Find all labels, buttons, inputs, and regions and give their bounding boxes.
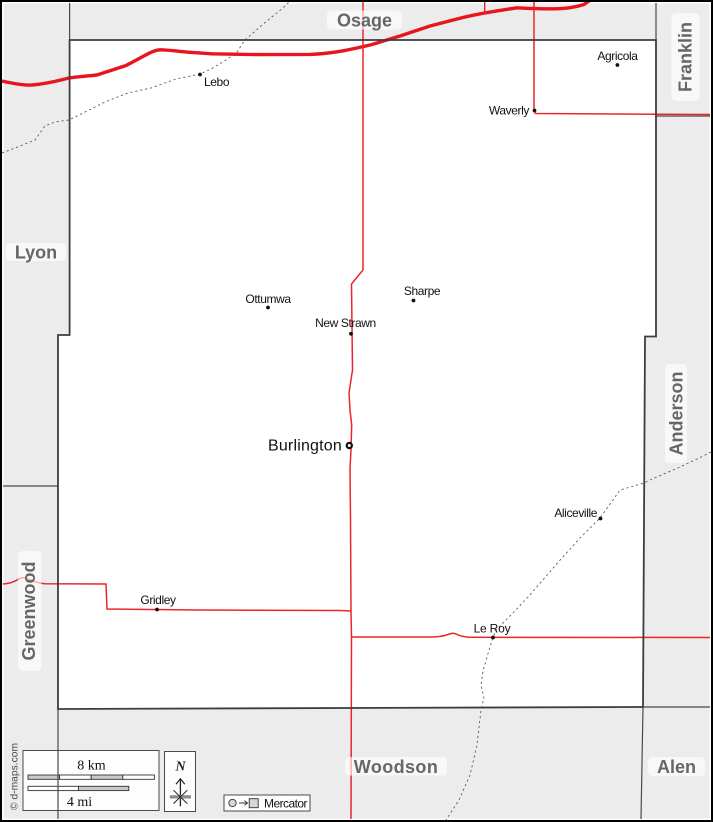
svg-text:Waverly: Waverly bbox=[489, 104, 529, 118]
svg-text:Franklin: Franklin bbox=[675, 22, 695, 92]
svg-text:Greenwood: Greenwood bbox=[19, 561, 39, 660]
svg-text:Ottumwa: Ottumwa bbox=[245, 292, 291, 306]
svg-text:Sharpe: Sharpe bbox=[404, 284, 441, 298]
svg-text:Burlington: Burlington bbox=[268, 438, 342, 455]
svg-text:Alen: Alen bbox=[657, 757, 696, 777]
svg-text:Gridley: Gridley bbox=[140, 593, 176, 607]
svg-text:Osage: Osage bbox=[337, 10, 392, 30]
svg-text:Lebo: Lebo bbox=[204, 75, 230, 89]
svg-text:8 km: 8 km bbox=[77, 759, 106, 774]
svg-text:Mercator: Mercator bbox=[264, 796, 307, 810]
svg-text:Agricola: Agricola bbox=[597, 49, 638, 63]
svg-text:4 mi: 4 mi bbox=[67, 795, 92, 810]
svg-text:Le Roy: Le Roy bbox=[474, 622, 511, 636]
svg-text:N: N bbox=[174, 760, 186, 775]
svg-text:Aliceville: Aliceville bbox=[554, 506, 597, 520]
svg-text:Lyon: Lyon bbox=[15, 242, 57, 262]
svg-text:© d-maps.com: © d-maps.com bbox=[10, 743, 21, 810]
svg-text:New Strawn: New Strawn bbox=[315, 316, 376, 330]
svg-text:Woodson: Woodson bbox=[354, 757, 438, 777]
svg-text:Anderson: Anderson bbox=[666, 371, 686, 455]
